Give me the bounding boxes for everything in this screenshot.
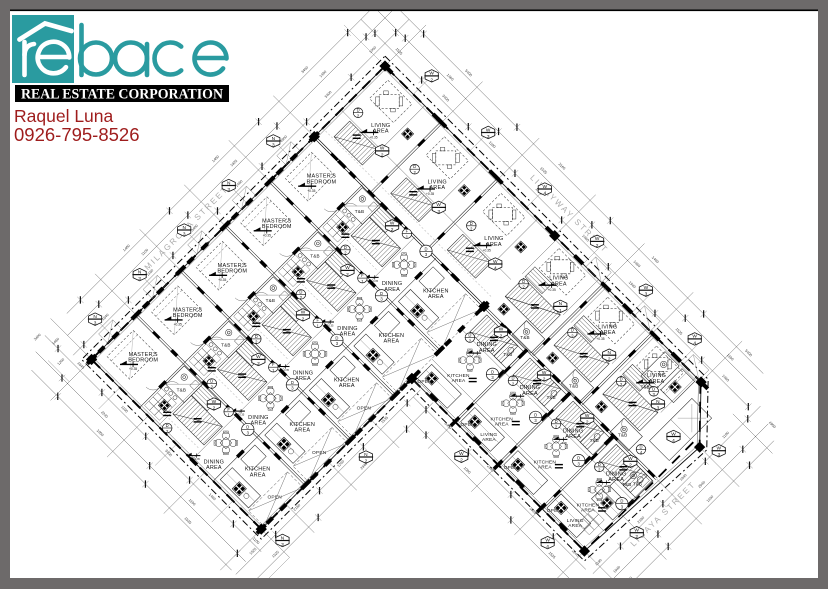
svg-text:+0.35: +0.35 bbox=[238, 414, 245, 417]
svg-text:+0.35: +0.35 bbox=[307, 189, 315, 193]
svg-text:D: D bbox=[511, 376, 514, 381]
svg-text:OPEN: OPEN bbox=[460, 422, 475, 428]
svg-text:T&B: T&B bbox=[520, 335, 530, 340]
svg-text:D: D bbox=[620, 499, 623, 504]
svg-text:+0.35: +0.35 bbox=[263, 234, 271, 238]
svg-text:3: 3 bbox=[717, 452, 720, 458]
svg-text:D: D bbox=[210, 379, 213, 384]
svg-text:+0.35: +0.35 bbox=[129, 367, 137, 371]
svg-text:W: W bbox=[543, 184, 548, 190]
svg-text:T&B: T&B bbox=[310, 254, 320, 259]
svg-text:T&B: T&B bbox=[633, 481, 642, 486]
svg-text:N: N bbox=[656, 399, 660, 405]
svg-text:3: 3 bbox=[272, 142, 275, 148]
svg-text:D: D bbox=[413, 164, 416, 169]
svg-text:AREA: AREA bbox=[568, 523, 582, 529]
svg-text:3: 3 bbox=[94, 321, 97, 327]
svg-text:AREA: AREA bbox=[522, 391, 538, 397]
svg-text:W: W bbox=[585, 413, 590, 419]
svg-text:W: W bbox=[212, 399, 217, 405]
svg-text:D: D bbox=[424, 246, 427, 251]
svg-text:+0.35: +0.35 bbox=[372, 280, 379, 283]
svg-text:N: N bbox=[138, 269, 142, 275]
svg-text:W: W bbox=[486, 127, 491, 133]
svg-text:W: W bbox=[542, 370, 547, 376]
svg-text:F: F bbox=[227, 407, 230, 412]
svg-text:2: 2 bbox=[346, 272, 349, 278]
svg-text:OPEN: OPEN bbox=[504, 465, 519, 471]
svg-text:D: D bbox=[571, 328, 574, 333]
svg-text:OPEN: OPEN bbox=[357, 406, 372, 412]
svg-text:AREA: AREA bbox=[486, 242, 502, 248]
svg-text:OPEN: OPEN bbox=[547, 508, 562, 514]
svg-text:4: 4 bbox=[672, 438, 675, 444]
svg-text:+0.35: +0.35 bbox=[426, 192, 434, 196]
svg-text:D: D bbox=[598, 462, 601, 467]
svg-text:D: D bbox=[291, 380, 294, 385]
svg-text:D: D bbox=[620, 376, 623, 381]
svg-text:0926-795-8526: 0926-795-8526 bbox=[14, 124, 140, 145]
svg-text:AREA: AREA bbox=[538, 465, 552, 471]
svg-text:N: N bbox=[93, 314, 97, 320]
svg-text:+0.35: +0.35 bbox=[218, 278, 226, 282]
svg-text:W: W bbox=[634, 528, 639, 534]
svg-text:D: D bbox=[652, 386, 655, 391]
svg-text:T&B: T&B bbox=[177, 387, 187, 392]
svg-text:AREA: AREA bbox=[429, 185, 445, 191]
svg-text:N: N bbox=[281, 535, 285, 541]
svg-text:OPEN: OPEN bbox=[267, 495, 282, 501]
svg-text:3: 3 bbox=[487, 134, 490, 140]
svg-text:4: 4 bbox=[494, 265, 497, 271]
svg-text:AREA: AREA bbox=[250, 472, 266, 478]
svg-text:+0.35: +0.35 bbox=[483, 248, 491, 252]
svg-text:OPEN: OPEN bbox=[312, 450, 327, 456]
svg-text:AREA: AREA bbox=[581, 508, 595, 514]
svg-text:3: 3 bbox=[281, 542, 284, 548]
svg-text:N: N bbox=[182, 225, 186, 231]
svg-text:AREA: AREA bbox=[294, 428, 310, 434]
svg-text:N: N bbox=[272, 136, 276, 142]
svg-text:AREA: AREA bbox=[649, 379, 665, 385]
svg-text:1: 1 bbox=[559, 308, 562, 314]
svg-text:+0.35: +0.35 bbox=[193, 458, 200, 461]
svg-text:KITCHEN: KITCHEN bbox=[534, 459, 557, 465]
svg-text:T&B: T&B bbox=[547, 395, 556, 400]
svg-text:Raquel Luna: Raquel Luna bbox=[14, 106, 114, 126]
svg-text:W: W bbox=[595, 236, 600, 242]
svg-text:3: 3 bbox=[645, 292, 648, 298]
svg-text:+0.35: +0.35 bbox=[174, 323, 182, 327]
svg-text:D: D bbox=[255, 334, 258, 339]
svg-text:AREA: AREA bbox=[428, 294, 444, 300]
svg-text:D: D bbox=[491, 369, 494, 374]
svg-text:W: W bbox=[671, 431, 676, 437]
svg-text:KITCHEN: KITCHEN bbox=[577, 503, 600, 509]
svg-text:W: W bbox=[545, 537, 550, 543]
svg-text:D: D bbox=[468, 333, 471, 338]
svg-text:N: N bbox=[364, 452, 368, 458]
svg-text:+0.35: +0.35 bbox=[369, 135, 377, 139]
svg-text:+0.35: +0.35 bbox=[604, 485, 611, 488]
svg-text:W: W bbox=[301, 310, 306, 316]
svg-text:D: D bbox=[534, 412, 537, 417]
svg-text:W: W bbox=[436, 202, 441, 208]
svg-text:D: D bbox=[639, 444, 642, 449]
svg-text:AREA: AREA bbox=[339, 383, 355, 389]
svg-text:W: W bbox=[459, 451, 464, 457]
svg-text:LIVING: LIVING bbox=[567, 518, 584, 524]
svg-text:AREA: AREA bbox=[452, 378, 466, 384]
svg-text:W: W bbox=[717, 446, 722, 452]
svg-text:D: D bbox=[522, 279, 525, 284]
svg-text:W: W bbox=[499, 327, 504, 333]
svg-text:2: 2 bbox=[365, 458, 368, 464]
svg-text:2: 2 bbox=[213, 405, 216, 411]
svg-text:REAL ESTATE CORPORATION: REAL ESTATE CORPORATION bbox=[21, 87, 223, 103]
svg-text:D: D bbox=[577, 456, 580, 461]
svg-text:AREA: AREA bbox=[565, 434, 581, 440]
svg-text:N: N bbox=[607, 350, 611, 356]
svg-text:4: 4 bbox=[693, 340, 696, 346]
svg-text:T&B: T&B bbox=[266, 298, 276, 303]
svg-text:T&B: T&B bbox=[355, 209, 365, 214]
svg-text:T&B: T&B bbox=[590, 438, 599, 443]
svg-text:+0.35: +0.35 bbox=[517, 399, 524, 402]
svg-text:KITCHEN: KITCHEN bbox=[447, 373, 470, 379]
svg-text:T&B: T&B bbox=[622, 482, 632, 487]
svg-text:F: F bbox=[317, 318, 320, 323]
svg-text:F: F bbox=[406, 229, 409, 234]
svg-text:3: 3 bbox=[138, 276, 141, 282]
svg-text:AREA: AREA bbox=[495, 421, 509, 427]
svg-text:2: 2 bbox=[543, 376, 546, 382]
svg-text:+0.35: +0.35 bbox=[327, 325, 334, 328]
svg-text:3: 3 bbox=[437, 209, 440, 215]
svg-text:T&B: T&B bbox=[618, 433, 628, 438]
svg-text:D: D bbox=[246, 425, 249, 430]
svg-text:+0.35: +0.35 bbox=[283, 369, 290, 372]
svg-text:W: W bbox=[628, 456, 633, 462]
svg-text:AREA: AREA bbox=[482, 437, 496, 443]
svg-text:D: D bbox=[344, 245, 347, 250]
svg-text:2: 2 bbox=[596, 243, 599, 249]
svg-text:D: D bbox=[357, 108, 360, 113]
svg-text:2: 2 bbox=[430, 77, 433, 83]
svg-text:W: W bbox=[256, 354, 261, 360]
svg-text:2: 2 bbox=[302, 316, 305, 322]
svg-text:AREA: AREA bbox=[551, 281, 567, 287]
svg-text:+0.35: +0.35 bbox=[474, 356, 481, 359]
svg-text:+0.35: +0.35 bbox=[560, 442, 567, 445]
svg-text:D: D bbox=[555, 419, 558, 424]
svg-text:2: 2 bbox=[381, 152, 384, 158]
svg-text:AREA: AREA bbox=[206, 465, 222, 471]
svg-text:T&B: T&B bbox=[221, 343, 231, 348]
svg-text:2: 2 bbox=[257, 361, 260, 367]
svg-text:D: D bbox=[335, 335, 338, 340]
svg-text:2: 2 bbox=[391, 227, 394, 233]
svg-text:W: W bbox=[380, 146, 385, 152]
svg-text:D: D bbox=[380, 291, 383, 296]
svg-text:W: W bbox=[692, 334, 697, 340]
svg-text:F: F bbox=[361, 273, 364, 278]
svg-text:OPEN: OPEN bbox=[417, 379, 432, 385]
svg-text:+0.35: +0.35 bbox=[548, 288, 556, 292]
svg-text:2: 2 bbox=[629, 463, 632, 469]
svg-text:D: D bbox=[299, 289, 302, 294]
svg-text:4: 4 bbox=[546, 544, 549, 550]
svg-text:W: W bbox=[493, 259, 498, 265]
svg-text:2: 2 bbox=[608, 357, 611, 363]
svg-text:2: 2 bbox=[586, 420, 589, 426]
svg-text:W: W bbox=[429, 71, 434, 77]
svg-text:LIVING: LIVING bbox=[480, 432, 497, 438]
svg-text:N: N bbox=[559, 301, 563, 307]
svg-text:W: W bbox=[644, 285, 649, 291]
svg-text:3: 3 bbox=[227, 187, 230, 193]
svg-text:T&B: T&B bbox=[641, 384, 650, 389]
svg-text:D: D bbox=[166, 423, 169, 428]
svg-text:4: 4 bbox=[543, 190, 546, 196]
svg-text:D: D bbox=[470, 221, 473, 226]
svg-text:F: F bbox=[272, 362, 275, 367]
svg-text:AREA: AREA bbox=[600, 330, 616, 336]
svg-text:2: 2 bbox=[500, 333, 503, 339]
svg-text:AREA: AREA bbox=[373, 129, 389, 135]
svg-text:AREA: AREA bbox=[479, 348, 495, 354]
svg-text:2: 2 bbox=[460, 458, 463, 464]
svg-text:T&B: T&B bbox=[503, 352, 512, 357]
svg-text:AREA: AREA bbox=[384, 339, 400, 345]
svg-text:N: N bbox=[227, 180, 231, 186]
svg-text:3: 3 bbox=[657, 405, 660, 411]
svg-text:2: 2 bbox=[635, 534, 638, 540]
svg-text:T&B: T&B bbox=[569, 384, 579, 389]
svg-text:3: 3 bbox=[183, 231, 186, 237]
svg-text:W: W bbox=[390, 221, 395, 227]
svg-text:W: W bbox=[345, 265, 350, 271]
svg-text:+0.35: +0.35 bbox=[596, 337, 604, 341]
